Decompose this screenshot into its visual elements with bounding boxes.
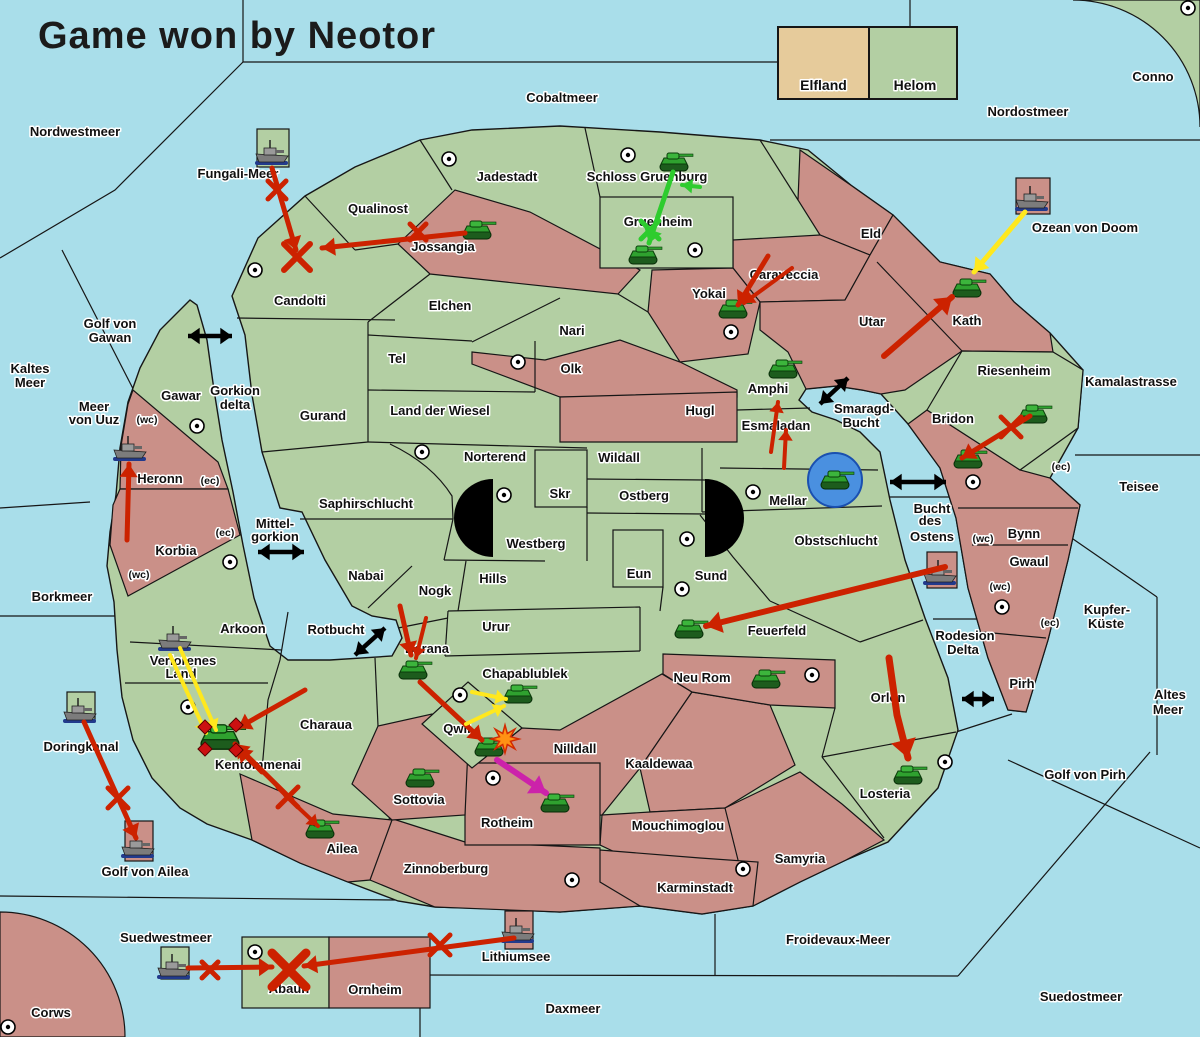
tank-barrel xyxy=(679,154,693,157)
town-dot-core xyxy=(741,867,745,871)
town-dot-core xyxy=(516,360,520,364)
town-dot-core xyxy=(680,587,684,591)
territory-label-neu-rom[interactable]: Neu Rom xyxy=(673,670,730,685)
sea-label: Kamalastrasse xyxy=(1085,374,1177,389)
sea-label: Ozean von Doom xyxy=(1032,220,1138,235)
town-dot-core xyxy=(458,693,462,697)
legend-label-elfland: Elfland xyxy=(800,77,847,93)
town-dot-core xyxy=(685,537,689,541)
territory-label-ornheim[interactable]: Ornheim xyxy=(348,982,401,997)
territory-label-korbia[interactable]: Korbia xyxy=(155,543,197,558)
tank-turret xyxy=(682,620,694,626)
tank-barrel xyxy=(972,280,986,283)
town-dot-core xyxy=(626,153,630,157)
sea-label: Golf von Pirh xyxy=(1044,767,1126,782)
coast-marker: (ec) xyxy=(1052,461,1071,473)
sea-label: Kupfer- xyxy=(1084,602,1130,617)
sea-label: Teisee xyxy=(1119,479,1159,494)
sea-label: Rotbucht xyxy=(307,622,365,637)
territory-label-feuerfeld[interactable]: Feuerfeld xyxy=(748,623,807,638)
ship-deckhouse xyxy=(510,926,522,933)
territory-label-hugl[interactable]: Hugl xyxy=(686,403,715,418)
sea-label: gorkion xyxy=(251,529,299,544)
sea-label: Suedostmeer xyxy=(1040,989,1122,1004)
tank-barrel xyxy=(913,767,927,770)
sea-label: Gawan xyxy=(89,330,132,345)
territory-region[interactable] xyxy=(465,763,600,845)
territory-label-nabai[interactable]: Nabai xyxy=(348,568,383,583)
territory-label-riesenheim[interactable]: Riesenheim xyxy=(978,363,1051,378)
territory-label-eld[interactable]: Eld xyxy=(861,226,881,241)
sea-label: Fungali-Meer xyxy=(198,166,279,181)
town-dot-core xyxy=(1000,605,1004,609)
town-dot-core xyxy=(943,760,947,764)
territory-label-utar[interactable]: Utar xyxy=(859,314,885,329)
territory-label-candolti[interactable]: Candolti xyxy=(274,293,326,308)
territory-box[interactable] xyxy=(329,937,430,1008)
sea-label: Daxmeer xyxy=(546,1001,601,1016)
sea-label: Doringkanal xyxy=(43,739,118,754)
tank-turret xyxy=(470,221,482,227)
territory-label-mouchimoglou[interactable]: Mouchimoglou xyxy=(632,818,724,833)
ship-gun xyxy=(944,570,952,573)
tank-turret xyxy=(960,279,972,285)
explosion-icon xyxy=(491,725,519,753)
tank-turret xyxy=(759,670,771,676)
town-dot-core xyxy=(971,480,975,484)
territory-label-sund[interactable]: Sund xyxy=(695,568,728,583)
town-dot-core xyxy=(502,493,506,497)
ship-deckhouse xyxy=(130,841,142,848)
ship-deckhouse xyxy=(72,706,84,713)
tank-barrel xyxy=(840,472,854,475)
territory-label-amphi[interactable]: Amphi xyxy=(748,381,788,396)
territory-label-nogk[interactable]: Nogk xyxy=(419,583,452,598)
legend: ElflandHelom xyxy=(778,27,957,99)
coast-marker: (wc) xyxy=(137,414,158,426)
territory-label-norterend[interactable]: Norterend xyxy=(464,449,526,464)
sea-label: Meer xyxy=(15,375,45,390)
world-map[interactable]: NordwestmeerCobaltmeerNordostmeerFungali… xyxy=(0,0,1200,1037)
ship-gun xyxy=(178,964,186,967)
game-map-screen: NordwestmeerCobaltmeerNordostmeerFungali… xyxy=(0,0,1200,1037)
coast-marker: (wc) xyxy=(129,569,150,581)
town-dot-core xyxy=(186,705,190,709)
sea-label: Smaragd- xyxy=(834,401,894,416)
sea-label: Golf von xyxy=(84,316,137,331)
tank-barrel xyxy=(482,222,496,225)
sea-label: Lithiumsee xyxy=(482,949,551,964)
territory-label-rotheim[interactable]: Rotheim xyxy=(481,815,533,830)
tank-barrel xyxy=(560,795,574,798)
tank-barrel xyxy=(425,770,439,773)
sea-label: Golf von Ailea xyxy=(102,864,190,879)
sea-label: Rodesion xyxy=(935,628,994,643)
ship-deckhouse xyxy=(167,634,179,641)
ship-deckhouse xyxy=(122,444,134,451)
town-dot-core xyxy=(729,330,733,334)
territory-label-gurand[interactable]: Gurand xyxy=(300,408,346,423)
territory-label-tel[interactable]: Tel xyxy=(388,351,406,366)
territory-label-charaua[interactable]: Charaua xyxy=(300,717,353,732)
territory-label-karminstadt[interactable]: Karminstadt xyxy=(657,880,734,895)
sea-label: Suedwestmeer xyxy=(120,930,212,945)
ship-gun xyxy=(276,150,284,153)
tank-turret xyxy=(1026,405,1038,411)
territory-label-arkoon[interactable]: Arkoon xyxy=(220,621,266,636)
tank-turret xyxy=(776,360,788,366)
territory-label-urur[interactable]: Urur xyxy=(482,619,509,634)
town-dot-core xyxy=(6,1025,10,1029)
town-dot-core xyxy=(195,424,199,428)
sea-label: Bucht xyxy=(843,415,881,430)
sea-label: von Uuz xyxy=(69,412,120,427)
town-dot-core xyxy=(228,560,232,564)
territory-label-hills[interactable]: Hills xyxy=(479,571,506,586)
territory-label-samyria[interactable]: Samyria xyxy=(775,851,826,866)
ship-deckhouse xyxy=(1024,194,1036,201)
tank-turret xyxy=(406,661,418,667)
sea-label: Delta xyxy=(947,642,980,657)
ship-gun xyxy=(1036,196,1044,199)
ship-gun xyxy=(84,708,92,711)
territory-label-heronn[interactable]: Heronn xyxy=(137,471,183,486)
town-dot-core xyxy=(253,268,257,272)
territory-label-conno[interactable]: Conno xyxy=(1132,69,1173,84)
page-title: Game won by Neotor xyxy=(38,15,436,57)
tank-barrel xyxy=(648,247,662,250)
territory-label-zinnoberburg[interactable]: Zinnoberburg xyxy=(404,861,489,876)
territory-label-gwaul[interactable]: Gwaul xyxy=(1009,554,1048,569)
territory-label-jadestadt[interactable]: Jadestadt xyxy=(477,169,538,184)
ship-gun xyxy=(179,636,187,639)
coast-marker: (ec) xyxy=(216,527,235,539)
town-dot-core xyxy=(420,450,424,454)
town-dot-core xyxy=(491,776,495,780)
ship-gun xyxy=(142,843,150,846)
territory-label-nari[interactable]: Nari xyxy=(559,323,584,338)
territory-label-bridon[interactable]: Bridon xyxy=(932,411,974,426)
territory-label-nilldall[interactable]: Nilldall xyxy=(554,741,597,756)
town-dot-core xyxy=(570,878,574,882)
territory-label-olk[interactable]: Olk xyxy=(561,361,583,376)
tank-barrel xyxy=(325,821,339,824)
territory-label-bynn[interactable]: Bynn xyxy=(1008,526,1041,541)
tank-barrel xyxy=(1038,406,1052,409)
sea-label: Kaltes xyxy=(10,361,49,376)
territory-label-ailea[interactable]: Ailea xyxy=(326,841,358,856)
territory-label-chapablublek[interactable]: Chapablublek xyxy=(482,666,568,681)
territory-box[interactable] xyxy=(600,197,733,268)
town-dot-core xyxy=(1186,6,1190,10)
territory-label-westberg[interactable]: Westberg xyxy=(507,536,566,551)
sea-label: des xyxy=(919,513,941,528)
territory-label-skr[interactable]: Skr xyxy=(550,486,571,501)
territory-label-gawar[interactable]: Gawar xyxy=(161,388,201,403)
tank-turret xyxy=(548,794,560,800)
coast-marker: (ec) xyxy=(1041,617,1060,629)
sea-label: Nordwestmeer xyxy=(30,124,120,139)
territory-label-kaaldewaa[interactable]: Kaaldewaa xyxy=(625,756,693,771)
sea-label: Meer xyxy=(1153,702,1183,717)
tank-barrel xyxy=(523,686,537,689)
territory-label-kath[interactable]: Kath xyxy=(953,313,982,328)
territory-label-mellar[interactable]: Mellar xyxy=(769,493,807,508)
sea-label: Froidevaux-Meer xyxy=(786,932,890,947)
tank-turret xyxy=(511,685,523,691)
territory-label-ostberg[interactable]: Ostberg xyxy=(619,488,669,503)
territory-label-wildall[interactable]: Wildall xyxy=(598,450,640,465)
sea-label: Ostens xyxy=(910,529,954,544)
sea-label: Altes xyxy=(1154,687,1186,702)
town-dot-core xyxy=(693,248,697,252)
territory-label-qualinost[interactable]: Qualinost xyxy=(348,201,409,216)
town-dot-core xyxy=(810,673,814,677)
coast-marker: (wc) xyxy=(973,533,994,545)
tank-barrel xyxy=(788,361,802,364)
territory-label-jossangia[interactable]: Jossangia xyxy=(411,239,475,254)
sea-label: Gorkion xyxy=(210,383,260,398)
territory-label-sottovia[interactable]: Sottovia xyxy=(393,792,445,807)
territory-label-land-der-wiesel[interactable]: Land der Wiesel xyxy=(390,403,490,418)
coast-marker: (wc) xyxy=(990,581,1011,593)
territory-label-corws[interactable]: Corws xyxy=(31,1005,71,1020)
sea-label: Cobaltmeer xyxy=(526,90,598,105)
tank-barrel xyxy=(418,662,432,665)
legend-label-helom: Helom xyxy=(894,77,937,93)
territory-label-obstschlucht[interactable]: Obstschlucht xyxy=(794,533,878,548)
town-dot-core xyxy=(751,490,755,494)
territory-label-eun[interactable]: Eun xyxy=(627,566,652,581)
town-dot-core xyxy=(253,950,257,954)
territory-label-saphirschlucht[interactable]: Saphirschlucht xyxy=(319,496,414,511)
ship-gun xyxy=(134,446,142,449)
territory-label-orlon[interactable]: Orlon xyxy=(871,690,906,705)
tank-turret xyxy=(667,153,679,159)
tank-barrel xyxy=(771,671,785,674)
sea-label: Nordostmeer xyxy=(988,104,1069,119)
ship-deckhouse xyxy=(166,962,178,969)
territory-label-losteria[interactable]: Losteria xyxy=(860,786,911,801)
ship-gun xyxy=(522,928,530,931)
coast-marker: (ec) xyxy=(201,475,220,487)
tank-turret xyxy=(901,766,913,772)
ship-deckhouse xyxy=(264,148,276,155)
town-dot-core xyxy=(447,157,451,161)
territory-label-pirh[interactable]: Pirh xyxy=(1009,676,1034,691)
sea-label: Borkmeer xyxy=(32,589,93,604)
sea-label: delta xyxy=(220,397,251,412)
tank-turret xyxy=(828,471,840,477)
sea-label: Küste xyxy=(1088,616,1124,631)
territory-label-elchen[interactable]: Elchen xyxy=(429,298,472,313)
tank-turret xyxy=(636,246,648,252)
tank-turret xyxy=(413,769,425,775)
territory-label-yokai[interactable]: Yokai xyxy=(692,286,726,301)
